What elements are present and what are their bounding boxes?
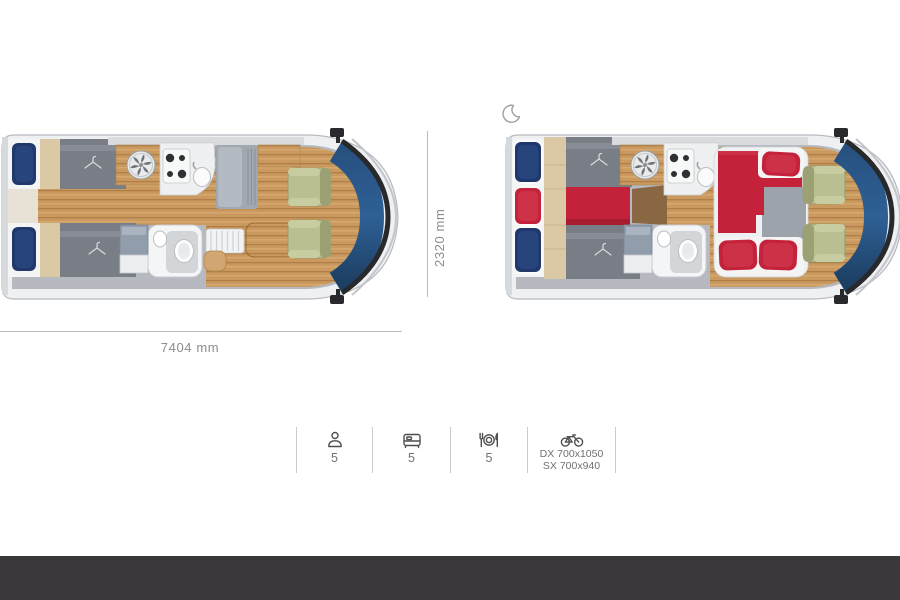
length-dimension-label: 7404 mm [130, 340, 250, 355]
spec-berths: 5 [373, 427, 451, 473]
cab-seat [803, 224, 845, 262]
spec-garage-line1: DX 700x1050 [540, 448, 604, 461]
moon-icon [499, 102, 523, 126]
rear-bench [8, 188, 38, 223]
radiator [206, 229, 244, 253]
cab-seat [288, 168, 331, 206]
cab-seat [288, 220, 331, 258]
kitchen [160, 143, 215, 195]
fridge-cabinet [120, 225, 148, 273]
spec-berths-value: 5 [408, 451, 415, 465]
footer-bar [0, 556, 900, 600]
width-dimension-line [427, 131, 428, 297]
bathroom [148, 225, 202, 277]
width-dimension-label: 2320 mm [431, 163, 449, 267]
bathroom [652, 225, 706, 277]
bed-icon [400, 430, 424, 450]
entry-step [204, 251, 226, 271]
motorhome-floorplan-day [0, 127, 402, 305]
fridge-cabinet [624, 225, 652, 273]
kitchen-sink [194, 168, 211, 187]
spec-garage-line2: SX 700x940 [543, 460, 600, 473]
bike-garage-icon [559, 430, 585, 448]
person-icon [323, 430, 347, 450]
page: 7404 mm 2320 mm 5 5 [0, 0, 900, 600]
length-dimension-line [0, 331, 402, 332]
cab-seat [803, 166, 845, 204]
bathroom-sink [658, 231, 671, 247]
stove [667, 149, 694, 183]
wardrobe-vent [116, 145, 162, 185]
spec-garage: DX 700x1050 SX 700x940 [528, 427, 616, 473]
kitchen-sink [698, 168, 715, 187]
spec-dining: 5 [451, 427, 528, 473]
roof-vent-fan-icon [127, 151, 155, 179]
spec-dining-value: 5 [486, 451, 493, 465]
spec-seats: 5 [297, 427, 373, 473]
kitchen [664, 143, 719, 195]
bathroom-sink [154, 231, 167, 247]
wardrobe-vent [620, 145, 666, 185]
motorhome-floorplan-night [504, 127, 900, 305]
roof-vent-fan-icon [631, 151, 659, 179]
dining-icon [477, 430, 501, 450]
stove [163, 149, 190, 183]
front-bed-night [714, 147, 808, 277]
spec-row: 5 5 5 DX 700x1050 [296, 427, 616, 473]
spec-seats-value: 5 [331, 451, 338, 465]
